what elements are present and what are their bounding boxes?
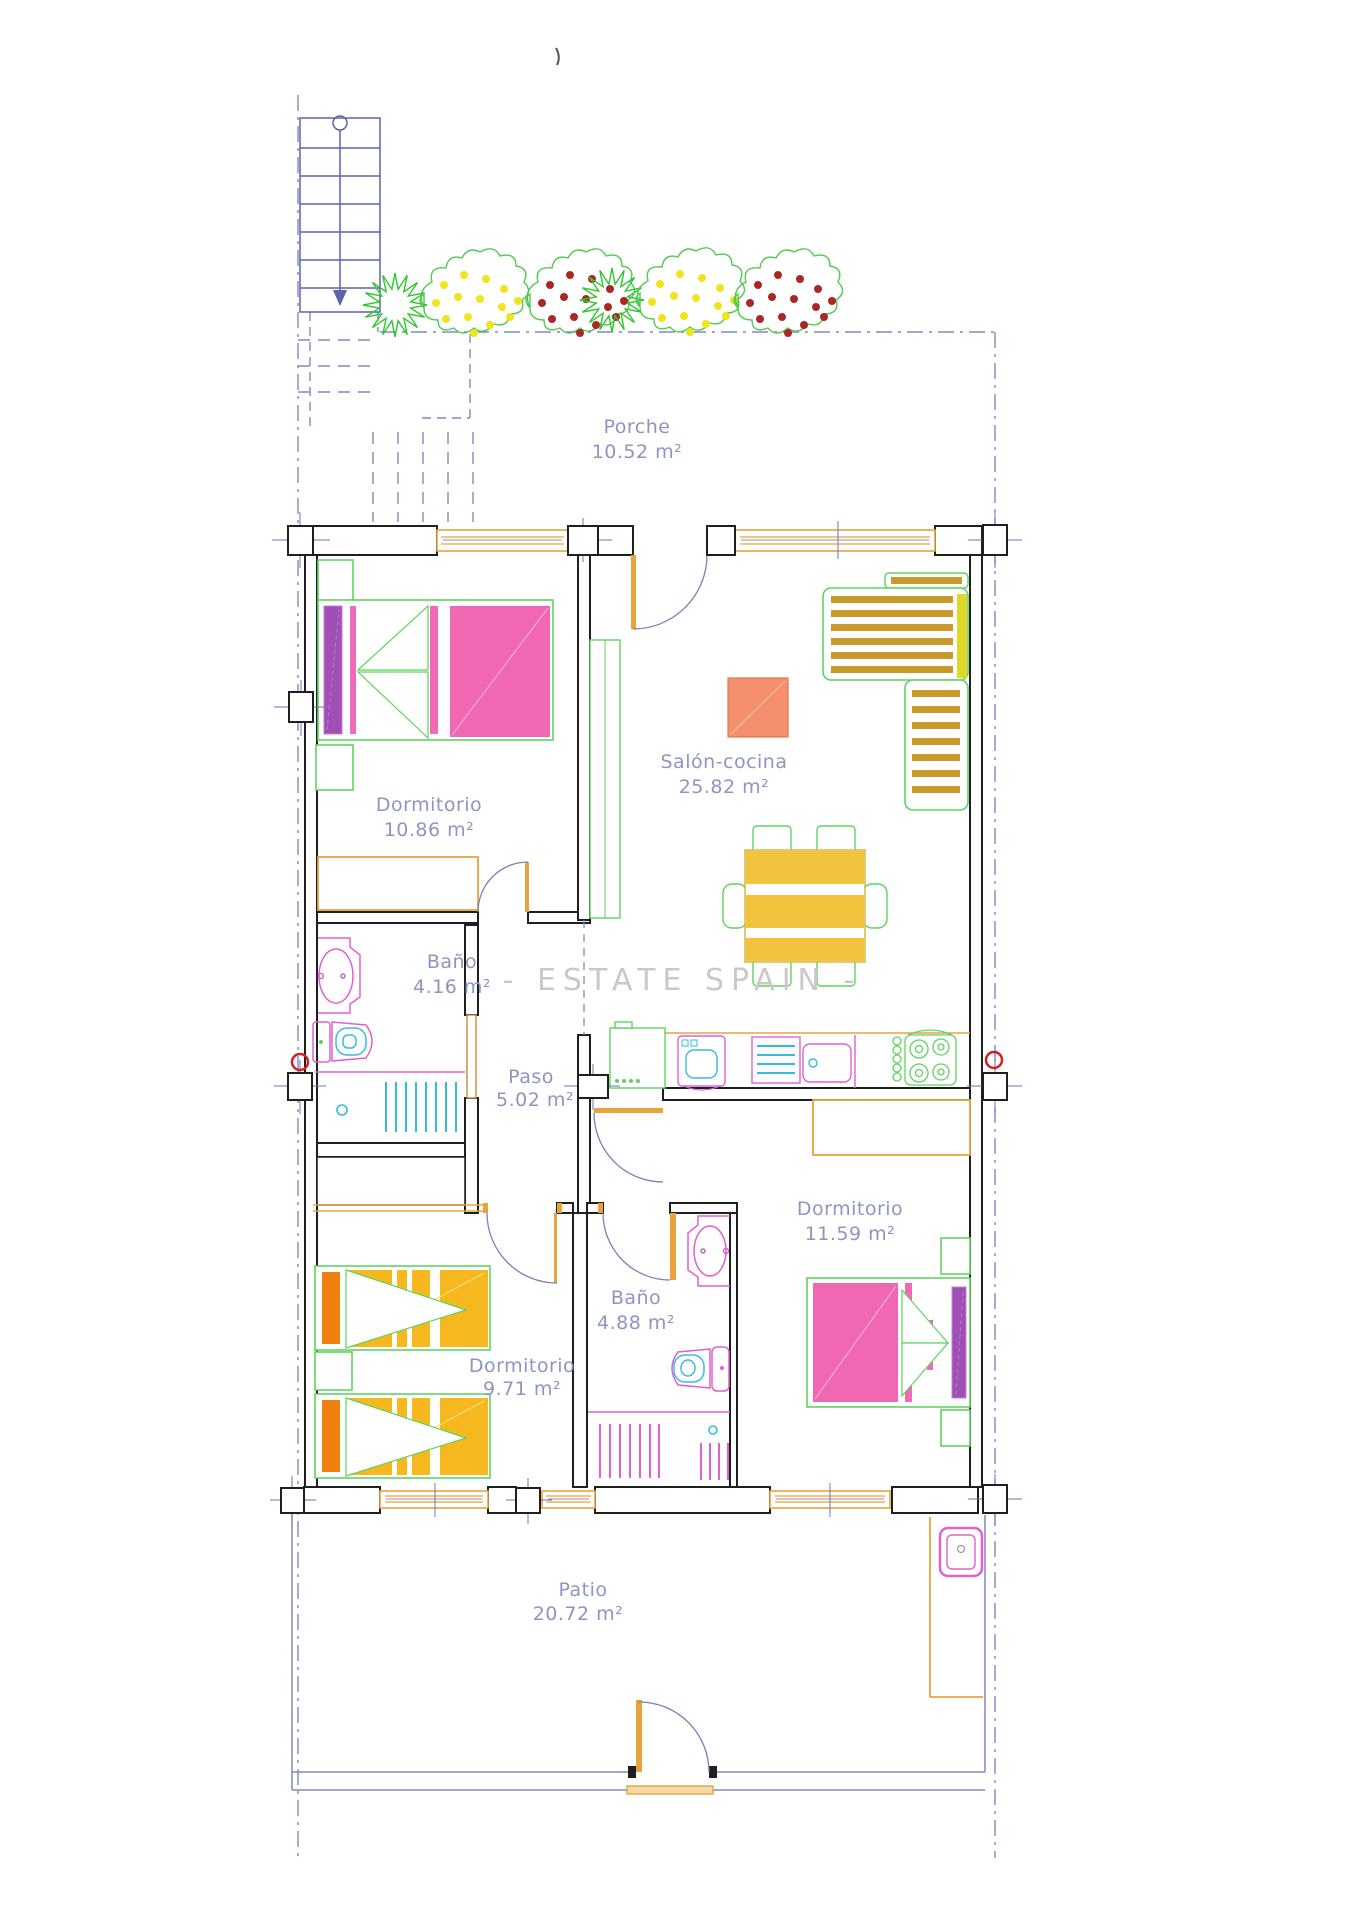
kitchen-sink <box>803 1044 851 1082</box>
room-area-dormitorio1: 10.86 m² <box>384 819 475 841</box>
pillow <box>322 1400 340 1472</box>
bedroom3-furniture <box>315 1266 490 1478</box>
toilet <box>313 1022 372 1062</box>
room-area-paso: 5.02 m² <box>496 1089 574 1111</box>
room-label-banio1: Baño <box>427 951 477 973</box>
sofa <box>823 573 968 810</box>
room-area-dormitorio3: 9.71 m² <box>483 1378 561 1400</box>
bedroom1-door <box>478 862 529 912</box>
fridge <box>610 1022 665 1088</box>
dishwasher <box>752 1037 800 1083</box>
patio-gate <box>627 1700 717 1794</box>
shrub-outline-icon <box>636 248 745 332</box>
bathroom2-door <box>598 1203 676 1280</box>
laundry-sink <box>940 1528 982 1576</box>
nightstand <box>315 1352 352 1390</box>
washing-machine <box>678 1036 725 1090</box>
room-area-patio: 20.72 m² <box>533 1603 624 1625</box>
room-area-dormitorio2: 11.59 m² <box>805 1223 896 1245</box>
closet-front-line <box>313 1205 483 1211</box>
floor-plan-page: Porche 10.52 m² Dormitorio 10.86 m² Saló… <box>0 0 1357 1920</box>
chair <box>863 884 887 928</box>
nightstand <box>316 745 353 790</box>
room-label-banio2: Baño <box>611 1287 661 1309</box>
bathroom-sink <box>688 1216 730 1286</box>
double-bed <box>807 1278 970 1407</box>
wardrobe-strip <box>590 640 620 918</box>
room-area-banio1: 4.16 m² <box>413 976 491 998</box>
cooktop <box>893 1030 956 1085</box>
floor-plan-drawing: Porche 10.52 m² Dormitorio 10.86 m² Saló… <box>0 0 1357 1920</box>
shrub-outline-icon <box>734 249 843 333</box>
living-kitchen-furniture <box>590 573 970 1090</box>
double-bed <box>318 600 553 740</box>
yellow-flowers-icon <box>432 271 522 337</box>
kitchen-counter <box>610 1022 970 1090</box>
chair <box>753 826 791 852</box>
bedroom2-door <box>594 1108 663 1182</box>
plumbing-riser-icon <box>986 1052 1002 1068</box>
room-label-dormitorio1: Dormitorio <box>376 794 482 816</box>
pillow <box>324 606 342 734</box>
pillow <box>952 1287 966 1398</box>
wardrobe <box>813 1100 970 1155</box>
nightstand <box>941 1238 970 1274</box>
bedroom1-furniture <box>316 560 553 910</box>
dining-set <box>723 826 887 986</box>
yellow-flowers-icon <box>648 270 738 336</box>
room-area-porche: 10.52 m² <box>592 441 683 463</box>
room-label-salon-cocina: Salón-cocina <box>661 751 788 773</box>
window-bottom-1 <box>380 1483 488 1517</box>
hedge-plants <box>363 248 843 337</box>
patio <box>292 1513 985 1794</box>
single-bed <box>315 1394 490 1478</box>
stairs-arrow-icon <box>333 290 347 306</box>
shower-drain <box>337 1082 456 1132</box>
chair <box>723 884 747 928</box>
watermark: - ESTATE SPAIN - <box>503 963 862 998</box>
bedroom2-furniture <box>807 1238 970 1446</box>
room-label-porche: Porche <box>604 416 671 438</box>
chair <box>817 826 855 852</box>
room-label-dormitorio2: Dormitorio <box>797 1198 903 1220</box>
stray-tick-mark <box>556 48 559 65</box>
shrub-outline-icon <box>420 249 529 333</box>
bathroom-sink <box>318 938 360 1013</box>
room-label-dormitorio3: Dormitorio <box>469 1355 575 1377</box>
side-table <box>728 678 788 737</box>
window-bottom-3 <box>770 1483 890 1517</box>
nightstand <box>318 560 353 606</box>
stairs <box>300 116 380 312</box>
nightstand <box>941 1410 970 1446</box>
entry-door <box>631 555 707 629</box>
pillow <box>322 1272 340 1344</box>
bathroom1-door <box>467 1015 476 1098</box>
window-top-living <box>735 521 935 559</box>
red-flowers-icon <box>746 271 836 337</box>
window-top-bedroom <box>437 530 568 551</box>
toilet <box>672 1347 729 1391</box>
bathroom2-fixtures <box>588 1216 730 1480</box>
bedroom3-door <box>483 1203 562 1283</box>
single-bed <box>315 1266 490 1350</box>
room-label-patio: Patio <box>558 1579 607 1601</box>
room-area-banio2: 4.88 m² <box>597 1312 675 1334</box>
conifer-bush-icon <box>363 273 427 337</box>
shower-drain <box>600 1424 728 1480</box>
wardrobe <box>318 857 478 910</box>
room-area-salon-cocina: 25.82 m² <box>679 776 770 798</box>
room-label-paso: Paso <box>508 1066 554 1088</box>
